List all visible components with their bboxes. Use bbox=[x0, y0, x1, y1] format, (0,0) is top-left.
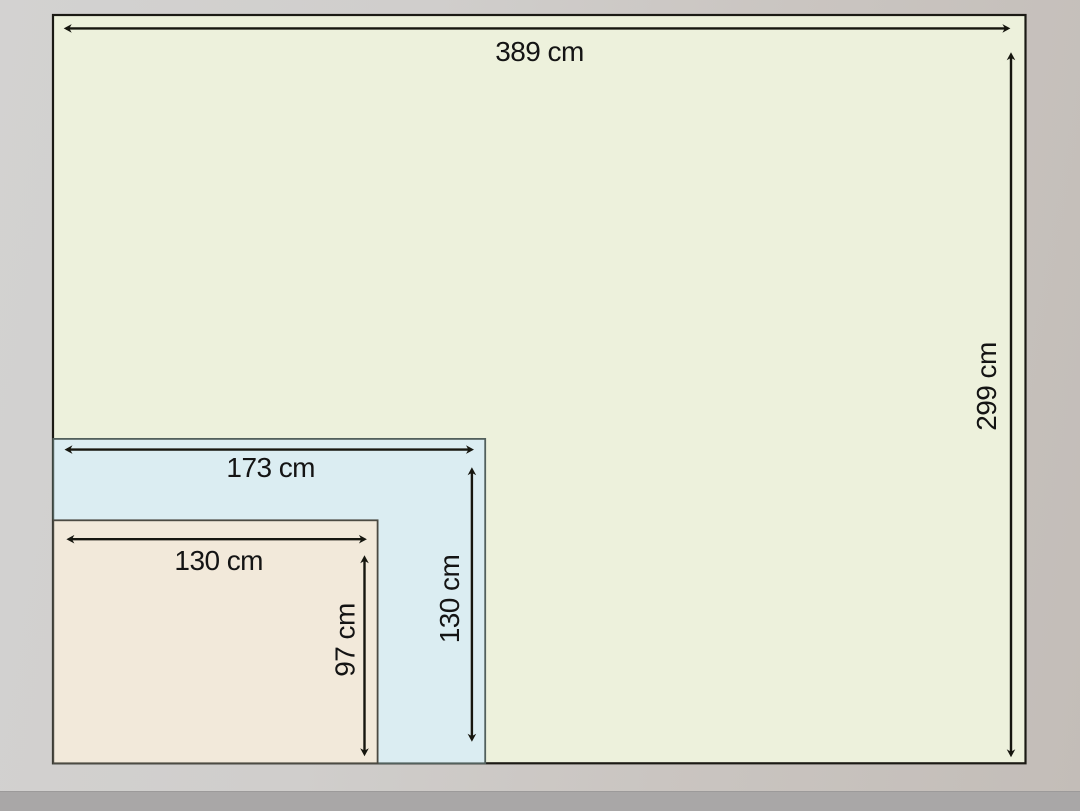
svg-text:130 cm: 130 cm bbox=[174, 545, 263, 576]
svg-text:299 cm: 299 cm bbox=[971, 342, 1002, 431]
svg-text:97 cm: 97 cm bbox=[330, 603, 361, 677]
svg-text:389 cm: 389 cm bbox=[495, 36, 584, 67]
svg-text:173 cm: 173 cm bbox=[226, 452, 315, 483]
svg-text:130 cm: 130 cm bbox=[434, 555, 465, 644]
